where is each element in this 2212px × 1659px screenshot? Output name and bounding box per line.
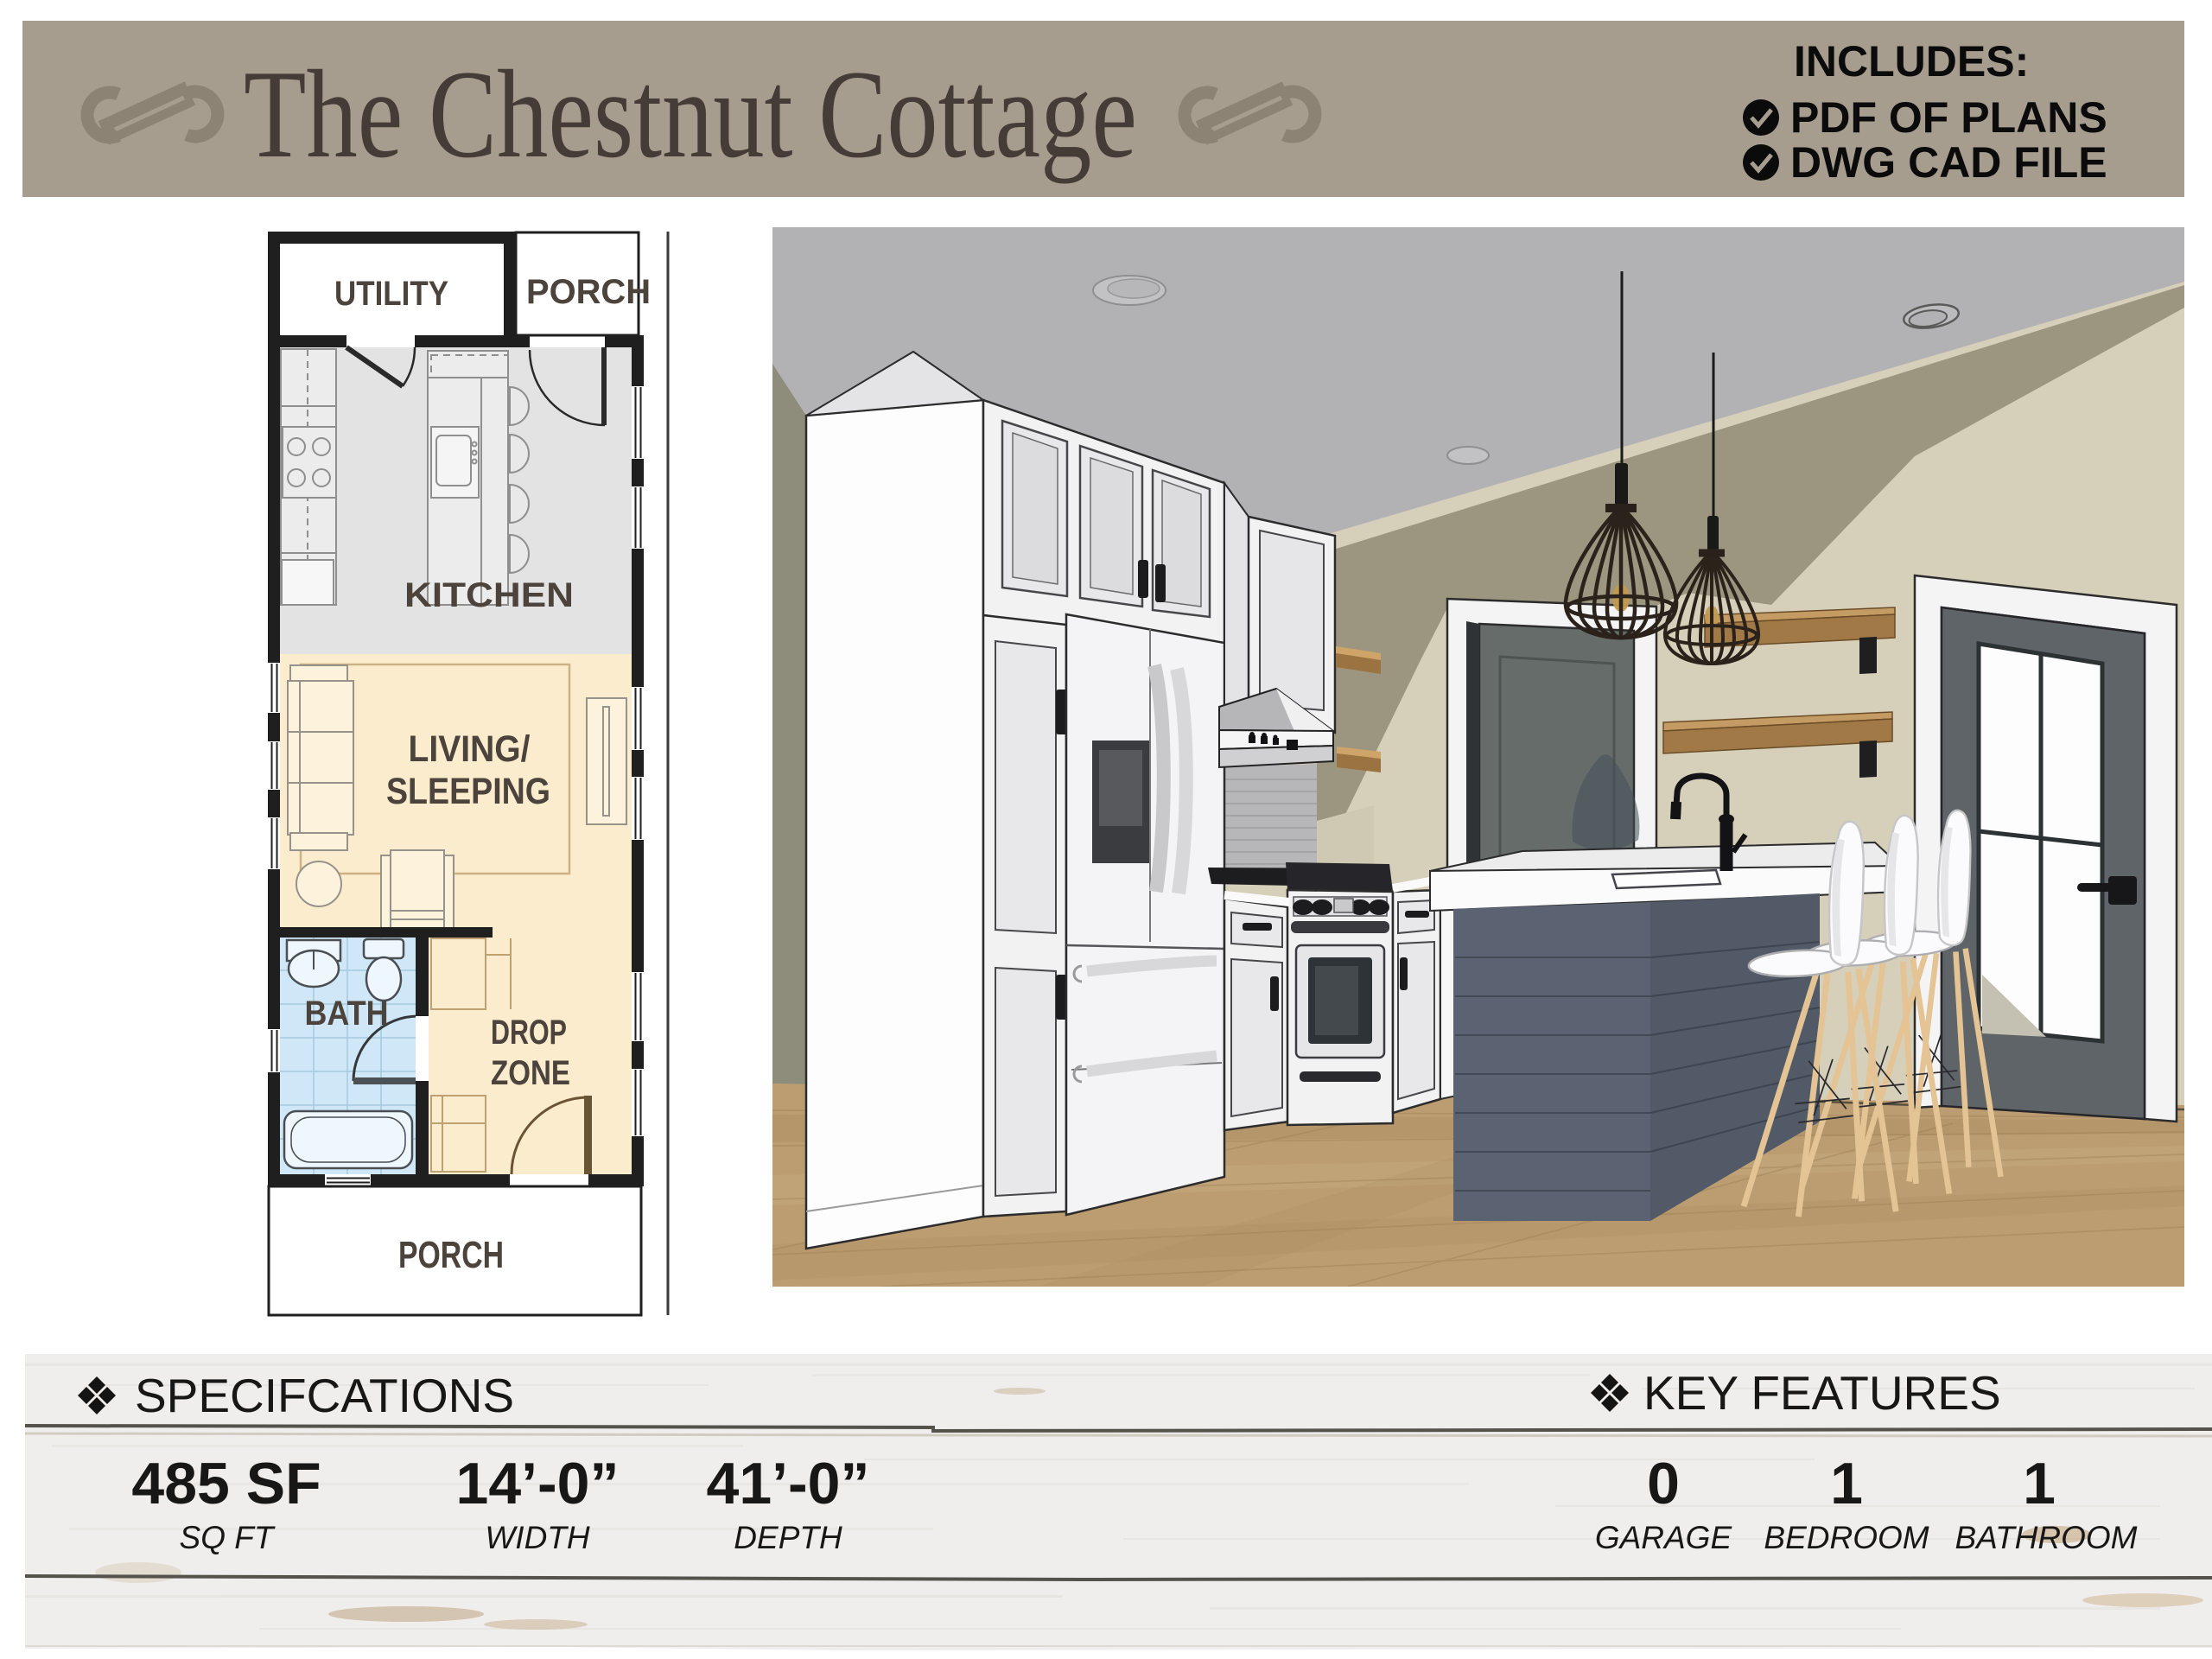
svg-text:INCLUDES:: INCLUDES: (1794, 37, 2029, 86)
svg-text:1: 1 (2023, 1451, 2056, 1516)
svg-text:SQ FT: SQ FT (180, 1520, 276, 1555)
svg-text:PDF OF PLANS: PDF OF PLANS (1790, 93, 2107, 142)
svg-text:KITCHEN: KITCHEN (404, 576, 574, 614)
svg-text:PORCH: PORCH (398, 1234, 504, 1276)
svg-text:485 SF: 485 SF (131, 1451, 321, 1516)
svg-text:KEY FEATURES: KEY FEATURES (1643, 1366, 2001, 1420)
svg-text:0: 0 (1647, 1451, 1680, 1516)
svg-text:41’-0”: 41’-0” (707, 1451, 870, 1516)
svg-text:GARAGE: GARAGE (1595, 1520, 1733, 1555)
svg-text:BATHROOM: BATHROOM (1955, 1520, 2137, 1555)
svg-text:WIDTH: WIDTH (485, 1520, 590, 1555)
svg-text:BATH: BATH (305, 995, 389, 1033)
svg-text:DROP: DROP (491, 1014, 567, 1052)
svg-text:BEDROOM: BEDROOM (1764, 1520, 1929, 1555)
svg-text:The Chestnut Cottage: The Chestnut Cottage (244, 44, 1137, 184)
svg-text:ZONE: ZONE (491, 1054, 570, 1092)
svg-text:DWG CAD FILE: DWG CAD FILE (1790, 138, 2107, 187)
svg-text:DEPTH: DEPTH (734, 1520, 842, 1555)
svg-text:SLEEPING: SLEEPING (386, 771, 550, 812)
svg-text:1: 1 (1830, 1451, 1863, 1516)
svg-text:UTILITY: UTILITY (334, 275, 448, 313)
svg-text:SPECIFCATIONS: SPECIFCATIONS (135, 1369, 514, 1422)
svg-text:PORCH: PORCH (526, 273, 651, 311)
svg-text:14’-0”: 14’-0” (456, 1451, 620, 1516)
svg-text:LIVING/: LIVING/ (409, 728, 531, 770)
